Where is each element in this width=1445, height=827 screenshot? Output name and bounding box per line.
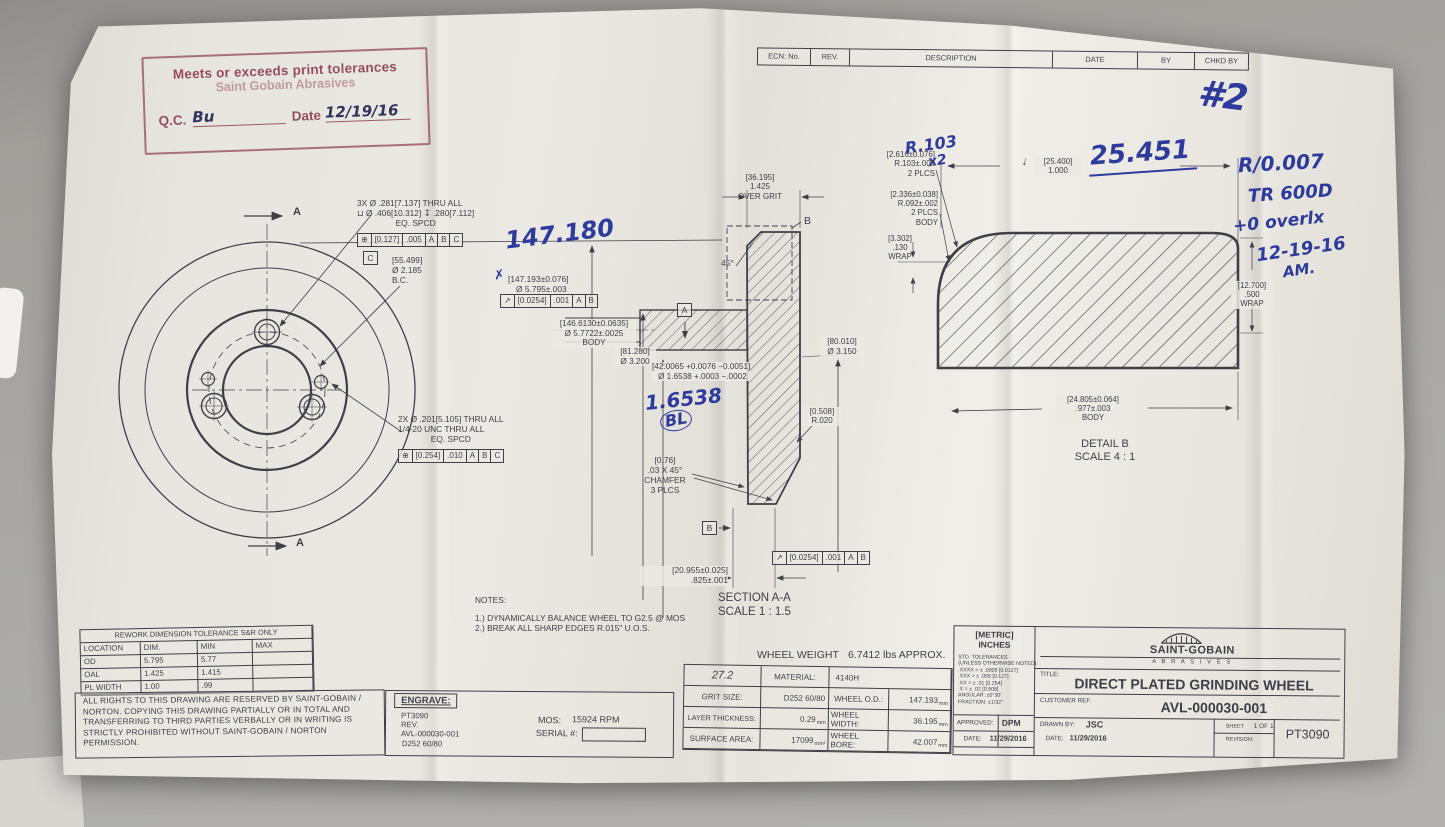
fcf-datum: B xyxy=(858,552,869,564)
brand-subtitle: A B R A S I V E S xyxy=(1044,658,1340,668)
od-fcf: ↗ [0.0254] .001 A B xyxy=(500,294,598,308)
spec-label2: WHEEL O.D.: xyxy=(829,688,889,710)
std-tolerances: STD. TOLERANCES (UNLESS OTHERWISE NOTED)… xyxy=(958,654,1038,706)
datum-a-box: A xyxy=(677,303,692,317)
engrave-line2: REV. xyxy=(401,720,419,729)
rework-header: LOCATION xyxy=(81,642,141,656)
detail-title: DETAIL B xyxy=(1068,438,1142,451)
drawing-title: DIRECT PLATED GRINDING WHEEL xyxy=(1049,675,1339,694)
wrap-line1: [3.302] xyxy=(876,234,924,243)
body-width-line3: BODY xyxy=(1056,413,1130,422)
overgrit-line1: [36.195] xyxy=(728,173,792,182)
body-radius-line1: [2.336±0.038] xyxy=(860,190,938,199)
radius-line2: R.020 xyxy=(802,416,842,425)
ecn-header: CHKD BY xyxy=(1195,53,1248,70)
wheel-weight-value: 6.7412 lbs APPROX. xyxy=(848,649,945,661)
rework-cell: OAL xyxy=(81,668,141,682)
bore-line2: Ø 1.6538 +.0003 −.0002 xyxy=(652,372,750,382)
bc-line3: B.C. xyxy=(392,276,422,286)
fcf-datum: A xyxy=(573,295,585,307)
drawn-date: 11/29/2016 xyxy=(1070,734,1107,743)
fcf-datum: C xyxy=(450,234,462,246)
wrap-line3: WRAP xyxy=(876,252,924,261)
rework-header: MAX xyxy=(253,639,313,653)
fcf-tolerance-mm: [0.0254] xyxy=(515,295,551,307)
spec-unit: mm xyxy=(817,720,826,726)
qc-signature-line: Bu xyxy=(192,105,286,127)
fcf-tolerance-mm: [0.127] xyxy=(372,234,403,246)
sheet-value: 1 OF 1 xyxy=(1254,723,1274,731)
approved-date: 11/29/2016 xyxy=(990,735,1027,744)
spec-value: D252 60/80 xyxy=(761,687,829,709)
over-grit-callout: [36.195] 1.425 OVER GRIT xyxy=(728,173,792,201)
saint-gobain-bridge-icon xyxy=(1159,631,1203,644)
section-arrow-label-bottom: A xyxy=(296,537,304,550)
tap-callout: 2X Ø .201[5.105] THRU ALL 1/4-20 UNC THR… xyxy=(398,415,504,445)
radius-callout: [0.508] R.020 xyxy=(802,407,842,426)
legal-text: ALL RIGHTS TO THIS DRAWING ARE RESERVED … xyxy=(76,690,385,752)
spec-label: SURFACE AREA: xyxy=(683,728,760,750)
rework-cell: 5.795 xyxy=(141,654,198,668)
engrave-line3: AVL-000030-001 xyxy=(401,729,459,739)
body-radius-line4: BODY xyxy=(860,218,938,227)
approved-label: APPROVED: xyxy=(957,719,994,727)
units-inches: INCHES xyxy=(954,639,1034,650)
wheel-weight-label: WHEEL WEIGHT xyxy=(757,649,839,661)
mos-label: MOS: xyxy=(538,715,561,726)
body-radius-line3: 2 PLCS xyxy=(860,208,938,217)
body-line2: Ø 5.7722±.0025 xyxy=(552,329,636,339)
fcf-symbol: ↗ xyxy=(501,295,515,307)
rework-cell: 1.415 xyxy=(198,666,253,680)
notes-header: NOTES: xyxy=(475,596,685,606)
radius-line1: [0.508] xyxy=(802,407,842,416)
material-label: MATERIAL: xyxy=(761,666,829,688)
fcf-datum: C xyxy=(491,450,503,462)
note-item-2: 2.) BREAK ALL SHARP EDGES R.015" U.O.S. xyxy=(475,624,685,634)
part-number: AVL-000030-001 xyxy=(1094,699,1334,718)
ecn-header: ECN: No. xyxy=(758,48,811,65)
fcf-datum: A xyxy=(467,450,479,462)
rework-cell: 5.77 xyxy=(198,653,253,667)
body-width-line1: [24.805±0.064] xyxy=(1056,395,1130,404)
divider xyxy=(1273,719,1274,757)
divider xyxy=(1214,733,1274,735)
divider xyxy=(954,714,1034,716)
corner-line1: [2.616±0.076] xyxy=(855,150,935,159)
body-line1: [146.6130±0.0635] xyxy=(552,319,636,329)
rework-header: DIM. xyxy=(141,641,198,655)
fcf-symbol: ⊕ xyxy=(399,450,413,462)
spec-unit: mm xyxy=(938,743,947,749)
spec-value: 0.29mm xyxy=(761,708,829,730)
photo-of-engineering-drawing: Meets or exceeds print tolerances Saint … xyxy=(0,0,1445,827)
fcf-tolerance-in: .005 xyxy=(403,234,426,246)
od2-line1: [80.010] xyxy=(820,337,864,347)
engrave-line1: PT3090 xyxy=(401,711,428,720)
corner-line2: R.103±.003 xyxy=(855,159,935,168)
serial-label: SERIAL #: xyxy=(536,728,578,739)
spec-value2: 42.007mm xyxy=(888,731,950,753)
datum-b-box: B xyxy=(702,521,717,535)
fcf-datum: B xyxy=(479,450,491,462)
divider xyxy=(954,746,1034,748)
hub-diameter-callout: [81.280] Ø 3.200 xyxy=(614,347,656,366)
od-callout: [147.193±0.076] Ø 5.795±.003 xyxy=(508,275,568,295)
spec-unit: mm xyxy=(939,722,948,728)
section-scale: SCALE 1 : 1.5 xyxy=(718,606,791,620)
rework-cell xyxy=(253,665,313,679)
spec-table: 27.2 MATERIAL: 4140H GRIT SIZE: D252 60/… xyxy=(682,664,952,754)
doc-number: PT3090 xyxy=(1276,727,1340,742)
revision-label: REVISION: xyxy=(1226,737,1254,744)
detail-label: DETAIL B SCALE 4 : 1 xyxy=(1068,438,1142,464)
fcf-datum: B xyxy=(586,295,597,307)
spec-label: LAYER THICKNESS: xyxy=(684,707,761,729)
overgrit-line3: OVER GRIT xyxy=(728,192,792,201)
detail-width-callout: [25.400] 1.000 xyxy=(1035,157,1081,176)
qc-label: Q.C. xyxy=(158,112,186,128)
fcf-datum: A xyxy=(845,552,857,564)
spec-value: 17099mm² xyxy=(760,729,828,751)
tap-fcf: ⊕ [0.254] .010 A B C xyxy=(398,449,504,463)
spec-value-text: 17099 xyxy=(791,735,813,744)
chamfer-callout: [0.76] .03 X 45° CHAMFER 3 PLCS xyxy=(638,456,692,496)
fcf-datum: B xyxy=(438,234,450,246)
fcf-datum: A xyxy=(426,234,438,246)
drawn-by-value: JSC xyxy=(1086,719,1104,730)
drawn-by-label: DRAWN BY: xyxy=(1040,721,1075,729)
wrap2-line2: .500 xyxy=(1231,290,1273,299)
counterbore-fcf: ⊕ [0.127] .005 A B C xyxy=(357,233,463,247)
detail-width-line1: [25.400] xyxy=(1035,157,1081,166)
engrave-header: ENGRAVE: xyxy=(394,693,458,708)
fcf-tolerance-mm: [0.0254] xyxy=(787,552,823,564)
rework-header: MIN xyxy=(198,640,253,654)
ecn-header: DATE xyxy=(1053,52,1138,69)
plate-width-line2: .825±.001 xyxy=(640,576,728,586)
spec-value2: 147.193mm xyxy=(889,689,951,711)
approved-value: DPM xyxy=(1002,718,1021,728)
mos-value: 15924 RPM xyxy=(572,714,620,725)
corner-line3: 2 PLCS xyxy=(855,169,935,178)
spec-value2: 36.195mm xyxy=(889,710,951,732)
qc-signature: Bu xyxy=(192,108,215,127)
overgrit-line2: 1.425 xyxy=(728,182,792,191)
spec-hand-value: 27.2 xyxy=(684,665,761,687)
section-label: SECTION A-A SCALE 1 : 1.5 xyxy=(718,592,791,619)
fcf-tolerance-mm: [0.254] xyxy=(413,450,444,462)
spec-value-text: 42.007 xyxy=(913,737,938,746)
spec-value-text: 0.29 xyxy=(800,714,816,723)
detail-b-tag: B xyxy=(804,215,811,227)
date-label: Date xyxy=(292,108,322,124)
qc-stamp: Meets or exceeds print tolerances Saint … xyxy=(141,47,430,155)
material-value: 4140H xyxy=(829,667,951,690)
divider xyxy=(954,730,1034,732)
body-width-callout: [24.805±0.064] .977±.003 BODY xyxy=(1056,395,1130,423)
od2-line2: Ø 3.150 xyxy=(820,347,864,357)
divider xyxy=(1034,668,1340,672)
rework-table: REWORK DIMENSION TOLERANCE S&R ONLY LOCA… xyxy=(79,625,314,696)
approved-date-label: DATE: xyxy=(964,735,982,743)
stamp-signature-row: Q.C. Bu Date 12/19/16 xyxy=(145,100,427,129)
ecn-header: DESCRIPTION xyxy=(850,49,1053,67)
legal-notice-box: ALL RIGHTS TO THIS DRAWING ARE RESERVED … xyxy=(75,689,386,758)
wrap2-callout: [12.700] .500 WRAP xyxy=(1231,281,1273,309)
spec-value-text: D252 60/80 xyxy=(784,693,826,703)
wrap2-line1: [12.700] xyxy=(1231,281,1273,290)
date-line: 12/19/16 xyxy=(325,101,411,123)
wrap-line2: .130 xyxy=(876,243,924,252)
divider xyxy=(1213,719,1214,757)
fcf-symbol: ⊕ xyxy=(358,234,372,246)
spec-label2: WHEEL BORE: xyxy=(828,730,888,752)
handwritten-note-1: R/0.007 xyxy=(1237,150,1324,178)
spec-value-text: 147.193 xyxy=(909,695,938,704)
spec-value-text: 36.195 xyxy=(913,716,938,725)
bore-line1: [42.0065 +0.0076 −0.0051] xyxy=(652,362,750,372)
body-radius-line2: R.092±.002 xyxy=(860,199,938,208)
spec-unit: mm² xyxy=(814,741,825,747)
angle-callout: 45° xyxy=(721,258,734,268)
customer-ref-label: CUSTOMER REF. xyxy=(1040,697,1091,705)
rework-cell xyxy=(253,652,313,666)
ecn-header: REV. xyxy=(811,49,850,65)
body-diameter-callout: [146.6130±0.0635] Ø 5.7722±.0025 BODY xyxy=(552,319,636,348)
rework-cell: OD xyxy=(81,655,141,669)
body-width-line2: .977±.003 xyxy=(1056,404,1130,413)
spec-unit: mm xyxy=(939,701,948,707)
tol-line: FRACTION: ±1/32" xyxy=(958,699,1038,706)
section-arrow-label-top: A xyxy=(293,206,301,219)
date-value: 12/19/16 xyxy=(325,101,399,122)
handwritten-page-number: #2 xyxy=(1196,73,1251,121)
detail-width-line2: 1.000 xyxy=(1035,166,1081,175)
bolt-circle-callout: [55.499] Ø 2.185 B.C. xyxy=(392,256,422,286)
od2-callout: [80.010] Ø 3.150 xyxy=(820,337,864,356)
fcf-symbol: ↗ xyxy=(773,552,787,564)
engrave-line4: D252 60/80 xyxy=(402,739,442,748)
detail-scale: SCALE 4 : 1 xyxy=(1068,451,1142,464)
corner-radius-callout: [2.616±0.076] R.103±.003 2 PLCS xyxy=(855,150,935,178)
fcf-tolerance-in: .001 xyxy=(551,295,574,307)
title-block: [METRIC] INCHES STD. TOLERANCES (UNLESS … xyxy=(952,625,1345,758)
fcf-tolerance-in: .010 xyxy=(444,450,467,462)
spec-label2: WHEEL WIDTH: xyxy=(829,709,889,731)
drawn-date-label: DATE: xyxy=(1046,735,1064,743)
counterbore-callout-line3: EQ. SPCD xyxy=(357,219,474,229)
wrap-callout: [3.302] .130 WRAP xyxy=(876,234,924,262)
wrap2-line3: WRAP xyxy=(1231,299,1273,308)
sheet-label: SHEET xyxy=(1226,724,1244,731)
chamfer-line4: 3 PLCS xyxy=(638,486,692,496)
spec-label: GRIT SIZE: xyxy=(684,686,761,708)
divider xyxy=(1034,717,1340,721)
section-title: SECTION A-A xyxy=(718,592,791,606)
notes-block: NOTES: 1.) DYNAMICALLY BALANCE WHEEL TO … xyxy=(475,596,685,634)
plate-width-callout: [20.955±0.025] .825±.001 xyxy=(640,566,728,586)
hub-line1: [81.280] xyxy=(614,347,656,357)
rework-cell: 1.425 xyxy=(141,667,198,681)
units-header: [METRIC] INCHES xyxy=(954,629,1034,650)
serial-field xyxy=(582,727,646,741)
engrave-block: ENGRAVE: PT3090 REV. AVL-000030-001 D252… xyxy=(385,690,674,758)
hub-line2: Ø 3.200 xyxy=(614,357,656,367)
fcf-tolerance-in: .001 xyxy=(823,552,846,564)
bore-callout: [42.0065 +0.0076 −0.0051] Ø 1.6538 +.000… xyxy=(652,362,750,381)
units-metric: [METRIC] xyxy=(954,629,1034,640)
tap-callout-line3: EQ. SPCD xyxy=(398,435,504,445)
datum-c-box: C xyxy=(363,251,378,265)
body-radius-callout: [2.336±0.038] R.092±.002 2 PLCS BODY xyxy=(860,190,938,227)
parallelism-fcf: ↗ [0.0254] .001 A B xyxy=(772,551,870,565)
counterbore-callout: 3X Ø .281[7.137] THRU ALL ⊔ Ø .406[10.31… xyxy=(357,199,474,229)
ecn-header: BY xyxy=(1138,52,1195,69)
